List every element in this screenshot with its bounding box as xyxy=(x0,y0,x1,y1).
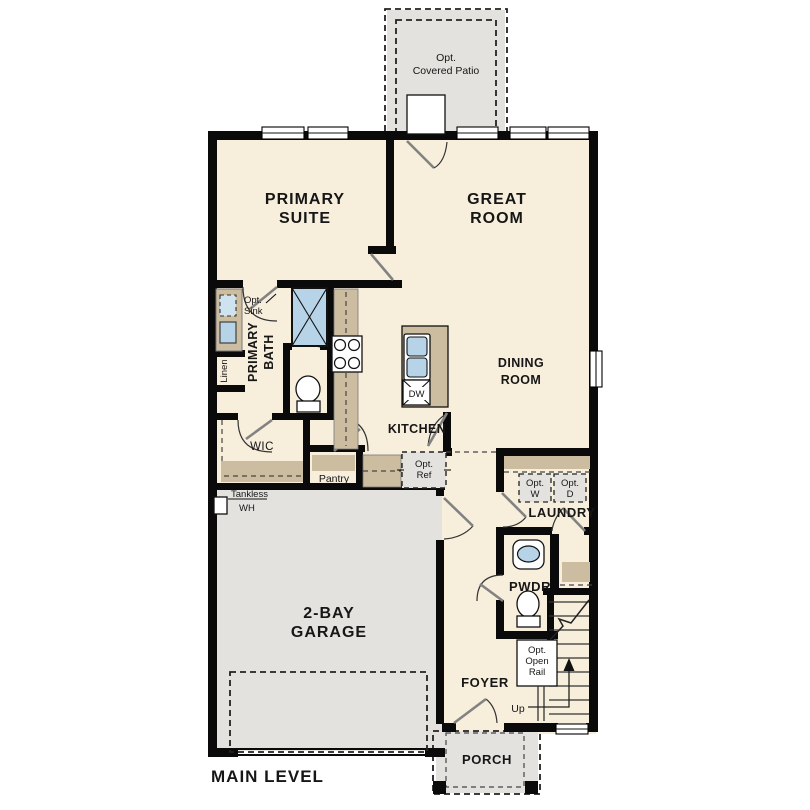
svg-text:BATH: BATH xyxy=(262,334,276,369)
opt-ref-label: Opt. xyxy=(415,459,433,470)
dw-label: DW xyxy=(409,389,425,400)
svg-text:GARAGE: GARAGE xyxy=(291,624,367,641)
coat-closet-shelf xyxy=(562,562,590,582)
svg-text:Open: Open xyxy=(525,656,548,667)
porch-post-right xyxy=(525,781,538,794)
porch-label: PORCH xyxy=(462,752,512,767)
svg-text:WH: WH xyxy=(239,503,255,514)
wic-label: WIC xyxy=(250,441,274,453)
opt-ref-label2: Ref xyxy=(417,470,432,481)
shower xyxy=(292,288,327,346)
primary-suite-label: PRIMARY xyxy=(265,191,345,208)
window xyxy=(262,127,304,139)
kitchen-counter-south xyxy=(363,455,401,487)
svg-text:Tankless: Tankless xyxy=(231,489,268,500)
porch: PORCH xyxy=(433,731,540,794)
pantry-label: Pantry xyxy=(319,473,350,485)
svg-text:ROOM: ROOM xyxy=(501,373,542,387)
dishwasher: DW xyxy=(403,380,430,405)
floor-plan-page: Opt. Covered Patio PORCH xyxy=(0,0,810,810)
svg-text:Opt.: Opt. xyxy=(526,478,544,489)
bath-vanity xyxy=(216,289,242,351)
wic-shelf xyxy=(221,461,303,482)
covered-patio: Opt. Covered Patio xyxy=(385,9,507,133)
patio-label: Opt. xyxy=(436,52,456,64)
dining-room-label: DINING xyxy=(498,356,544,370)
window xyxy=(457,127,498,139)
kitchen-label: KITCHEN xyxy=(388,422,446,436)
foyer-label: FOYER xyxy=(461,675,509,690)
bath-toilet xyxy=(296,376,320,412)
primary-bath-label: PRIMARY xyxy=(246,322,260,382)
window xyxy=(590,351,602,387)
optional-washer: Opt. W xyxy=(519,474,551,502)
svg-text:SUITE: SUITE xyxy=(279,210,331,227)
window xyxy=(548,127,589,139)
laundry-label: LAUNDRY xyxy=(528,505,595,520)
opt-open-rail-label: Opt. xyxy=(528,645,546,656)
window xyxy=(308,127,348,139)
pwdr-label: PWDR xyxy=(509,579,551,594)
svg-text:Opt.: Opt. xyxy=(561,478,579,489)
level-title: MAIN LEVEL xyxy=(211,767,324,786)
sink xyxy=(220,322,236,343)
svg-text:D: D xyxy=(567,489,574,500)
patio-landing xyxy=(407,95,445,134)
window xyxy=(510,127,546,139)
optional-sink xyxy=(220,295,236,316)
patio-label2: Covered Patio xyxy=(413,65,480,77)
up-label: Up xyxy=(511,703,525,715)
pantry-shelf xyxy=(312,455,355,471)
powder-sink xyxy=(513,540,544,569)
cooktop xyxy=(332,336,362,372)
powder-toilet xyxy=(517,591,540,627)
window xyxy=(556,724,588,734)
svg-text:Rail: Rail xyxy=(529,667,545,678)
optional-dryer: Opt. D xyxy=(554,474,586,502)
optional-refrigerator: Opt. Ref xyxy=(397,452,451,488)
opt-sink-label: Opt. xyxy=(244,295,262,306)
great-room-label: GREAT xyxy=(467,191,527,208)
floor-plan-drawing: Opt. Covered Patio PORCH xyxy=(0,0,810,810)
kitchen-island: DW xyxy=(402,326,448,407)
linen-label: Linen xyxy=(219,359,230,382)
svg-text:W: W xyxy=(531,489,540,500)
laundry-counter xyxy=(504,456,590,469)
svg-text:Sink: Sink xyxy=(244,306,263,317)
garage-label: 2-BAY xyxy=(303,605,355,622)
svg-text:ROOM: ROOM xyxy=(470,210,524,227)
porch-post-left xyxy=(433,781,446,794)
